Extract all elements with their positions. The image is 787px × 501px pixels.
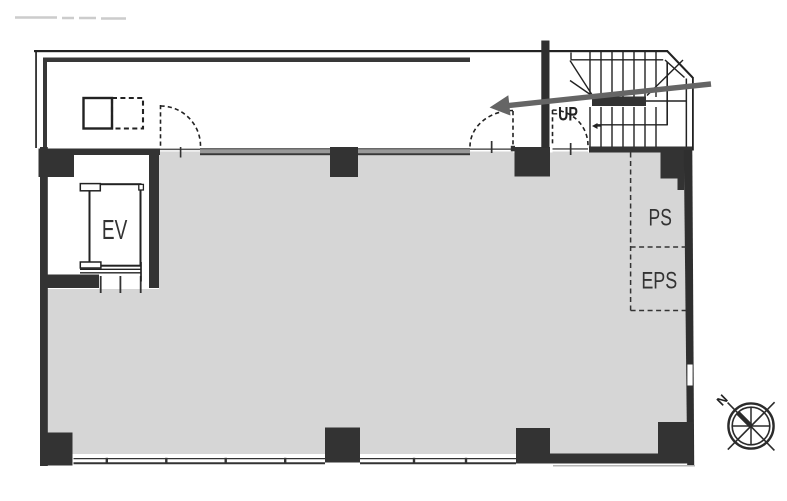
- svg-text:EV: EV: [102, 214, 127, 246]
- svg-text:PS: PS: [649, 204, 672, 232]
- svg-text:N: N: [713, 391, 730, 408]
- svg-text:UP: UP: [558, 103, 578, 125]
- svg-text:EPS: EPS: [641, 267, 677, 294]
